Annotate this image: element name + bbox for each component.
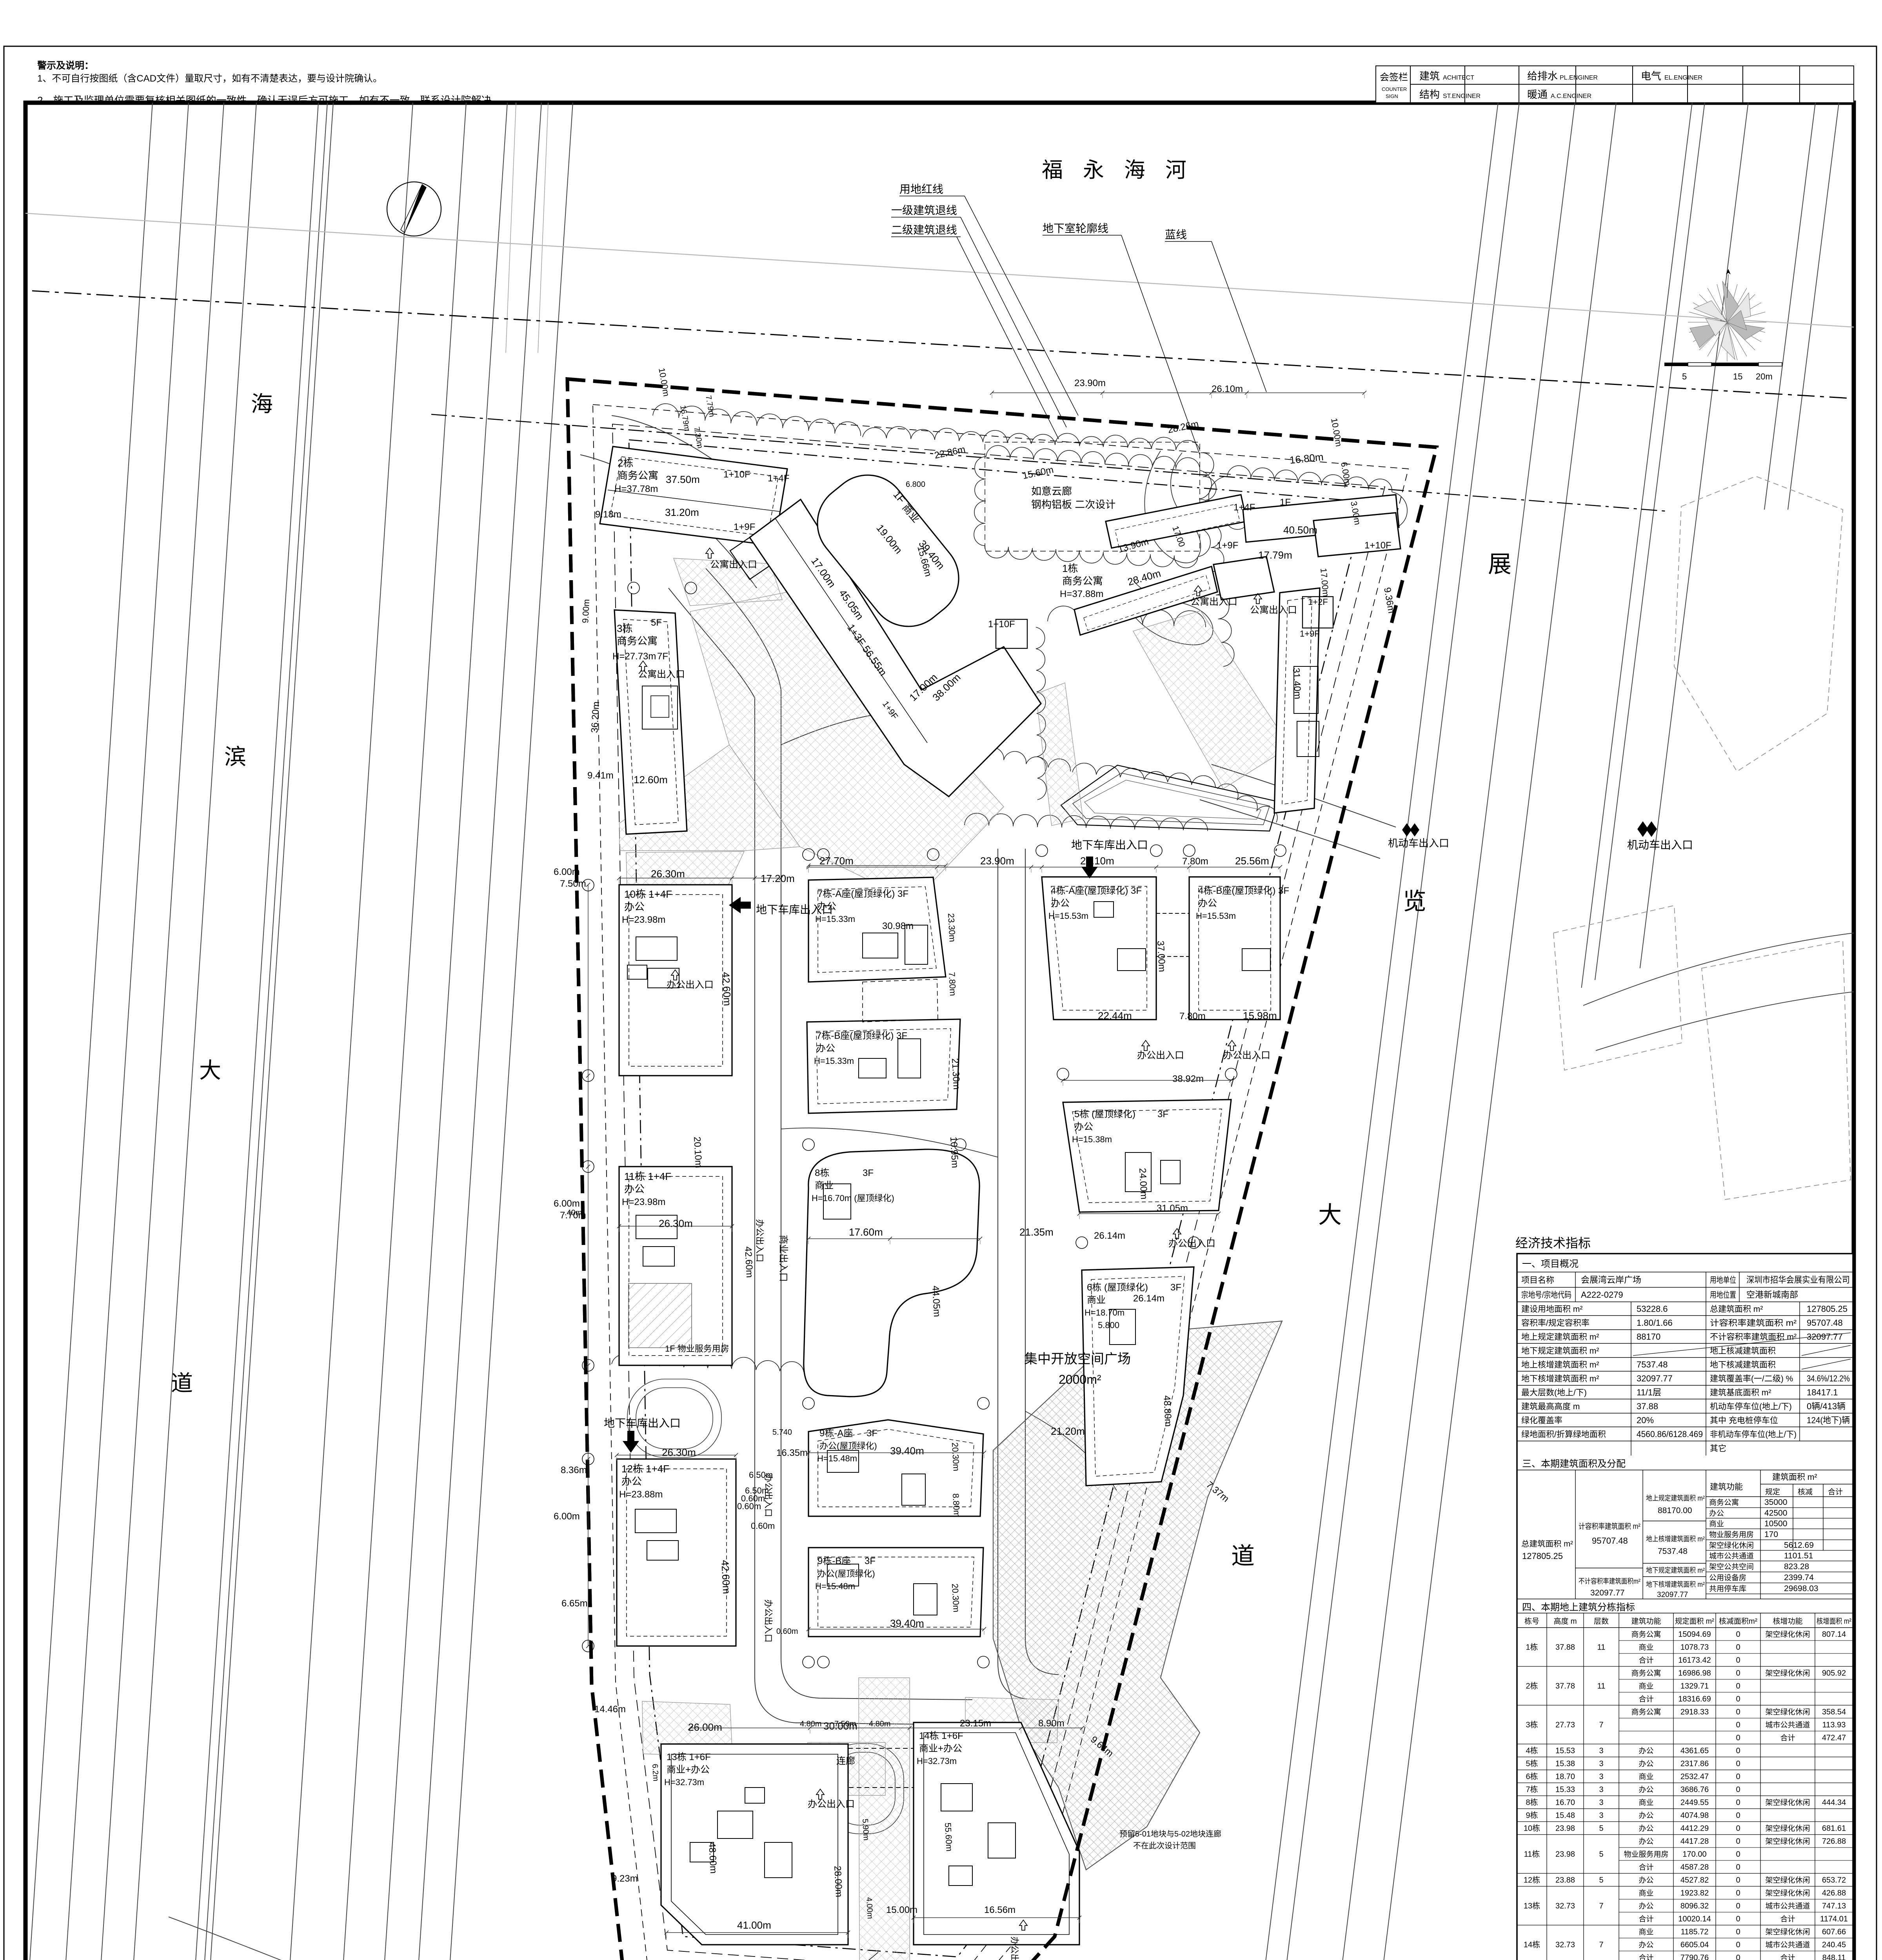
svg-text:17.79m: 17.79m [1258, 549, 1292, 561]
svg-text:SIGN: SIGN [1386, 93, 1398, 99]
svg-text:7.80m: 7.80m [1182, 856, 1208, 867]
svg-text:9.00m: 9.00m [580, 599, 591, 623]
svg-text:不在此次设计范围: 不在此次设计范围 [1133, 1841, 1196, 1850]
svg-text:地上核减建筑面积: 地上核减建筑面积 [1710, 1347, 1776, 1356]
svg-text:公寓出入口: 公寓出入口 [638, 669, 685, 680]
svg-text:0: 0 [1736, 1630, 1740, 1639]
svg-text:4560.86/6128.469: 4560.86/6128.469 [1637, 1429, 1703, 1439]
svg-text:23.98: 23.98 [1555, 1824, 1575, 1833]
svg-text:15.00m: 15.00m [886, 1905, 917, 1915]
svg-text:6.00m: 6.00m [554, 1511, 580, 1522]
svg-text:3: 3 [1599, 1811, 1603, 1820]
svg-text:道: 道 [1231, 1543, 1255, 1569]
svg-text:20.30m: 20.30m [950, 1442, 961, 1472]
svg-text:公寓出入口: 公寓出入口 [1190, 597, 1237, 607]
svg-text:2532.47: 2532.47 [1680, 1773, 1709, 1781]
svg-text:H=37.88m: H=37.88m [1060, 589, 1103, 599]
svg-text:0: 0 [1736, 1721, 1740, 1730]
svg-text:9.23m: 9.23m [612, 1873, 638, 1884]
svg-text:4栋-B座(屋顶绿化) 3F: 4栋-B座(屋顶绿化) 3F [1198, 886, 1289, 896]
svg-text:地下车库出入口: 地下车库出入口 [1071, 839, 1148, 851]
svg-text:8.80m: 8.80m [951, 1493, 962, 1517]
svg-text:20.30m: 20.30m [950, 1583, 961, 1613]
svg-text:地下核增建筑面积 m²: 地下核增建筑面积 m² [1521, 1374, 1599, 1383]
svg-text:9.41m: 9.41m [587, 770, 614, 781]
svg-text:用地红线: 用地红线 [899, 183, 943, 195]
svg-text:124(地下)辆: 124(地下)辆 [1807, 1416, 1850, 1425]
svg-text:0: 0 [1736, 1656, 1740, 1665]
svg-text:地下规定建筑面积 m²: 地下规定建筑面积 m² [1521, 1347, 1599, 1356]
svg-text:6.50m: 6.50m [749, 1470, 773, 1480]
svg-text:用地单位: 用地单位 [1710, 1276, 1736, 1285]
svg-text:结构: 结构 [1419, 89, 1440, 100]
svg-text:10栋: 10栋 [1524, 1824, 1540, 1833]
svg-text:H=15.38m: H=15.38m [1072, 1134, 1112, 1144]
svg-text:A222-0279: A222-0279 [1581, 1290, 1623, 1300]
svg-text:商业: 商业 [1639, 1889, 1653, 1898]
svg-text:7: 7 [1599, 1941, 1603, 1949]
svg-text:0: 0 [1736, 1786, 1740, 1794]
svg-text:9栋: 9栋 [1526, 1811, 1538, 1820]
svg-text:10栋 1+4F: 10栋 1+4F [624, 888, 672, 900]
svg-text:架空绿化休闲: 架空绿化休闲 [1765, 1928, 1810, 1936]
svg-text:6栋: 6栋 [1526, 1772, 1538, 1781]
svg-text:15094.69: 15094.69 [1678, 1630, 1711, 1639]
svg-text:3F: 3F [863, 1168, 874, 1178]
svg-text:472.47: 472.47 [1822, 1734, 1846, 1742]
svg-text:项目名称: 项目名称 [1521, 1276, 1554, 1285]
svg-text:0.60m: 0.60m [751, 1521, 775, 1531]
svg-text:空港新城南部: 空港新城南部 [1746, 1290, 1798, 1300]
svg-text:1栋: 1栋 [1062, 563, 1078, 574]
svg-text:607.66: 607.66 [1822, 1928, 1846, 1936]
svg-text:1101.51: 1101.51 [1784, 1552, 1813, 1561]
svg-text:暖通: 暖通 [1527, 89, 1548, 100]
svg-text:12栋 1+4F: 12栋 1+4F [621, 1463, 669, 1475]
svg-text:机动车出入口: 机动车出入口 [1627, 839, 1693, 851]
svg-text:公寓出入口: 公寓出入口 [710, 559, 757, 570]
svg-text:16.56m: 16.56m [984, 1905, 1015, 1915]
svg-text:地上核增建筑面积 m²: 地上核增建筑面积 m² [1646, 1535, 1705, 1543]
svg-text:绿地面积/折算绿地面积: 绿地面积/折算绿地面积 [1521, 1430, 1606, 1439]
svg-text:商务公寓: 商务公寓 [1631, 1630, 1661, 1639]
svg-text:1174.01: 1174.01 [1820, 1915, 1848, 1924]
svg-text:大: 大 [1318, 1202, 1342, 1228]
svg-text:架空绿化休闲: 架空绿化休闲 [1765, 1837, 1810, 1846]
svg-text:39.40m: 39.40m [890, 1445, 924, 1457]
svg-text:共用停车库: 共用停车库 [1709, 1584, 1746, 1593]
svg-text:0: 0 [1736, 1889, 1740, 1898]
svg-text:建筑覆盖率(一/二级) %: 建筑覆盖率(一/二级) % [1710, 1374, 1793, 1383]
svg-text:15.33: 15.33 [1555, 1786, 1575, 1794]
svg-text:4.00m: 4.00m [865, 1897, 874, 1919]
svg-text:444.34: 444.34 [1822, 1798, 1846, 1807]
svg-text:三、本期建筑面积及分配: 三、本期建筑面积及分配 [1522, 1459, 1626, 1469]
svg-text:9栋-A座: 9栋-A座 [819, 1428, 853, 1439]
svg-text:15.98m: 15.98m [1243, 1010, 1277, 1022]
svg-text:8.36m: 8.36m [561, 1465, 587, 1475]
svg-text:2栋: 2栋 [618, 457, 633, 469]
svg-text:H=15.53m: H=15.53m [1048, 911, 1088, 921]
svg-text:31.05m: 31.05m [1157, 1203, 1188, 1214]
svg-text:29698.03: 29698.03 [1784, 1584, 1818, 1593]
svg-text:0: 0 [1736, 1708, 1740, 1717]
svg-text:681.61: 681.61 [1822, 1824, 1846, 1833]
svg-text:高度 m: 高度 m [1553, 1617, 1577, 1626]
svg-text:27.73: 27.73 [1555, 1721, 1575, 1730]
svg-text:1、不可自行按图纸（含CAD文件）量取尺寸，如有不清楚表达，: 1、不可自行按图纸（含CAD文件）量取尺寸，如有不清楚表达，要与设计院确认。 [37, 73, 382, 84]
svg-text:H=23.98m: H=23.98m [622, 1197, 665, 1207]
svg-text:1栋: 1栋 [1526, 1643, 1538, 1652]
svg-text:办公: 办公 [1709, 1509, 1724, 1518]
svg-text:架空绿化休闲: 架空绿化休闲 [1765, 1876, 1810, 1885]
svg-text:0: 0 [1736, 1941, 1740, 1949]
svg-text:.40m: .40m [565, 1209, 582, 1217]
svg-text:架空绿化休闲: 架空绿化休闲 [1765, 1669, 1810, 1678]
svg-text:0: 0 [1736, 1928, 1740, 1936]
svg-text:807.14: 807.14 [1822, 1630, 1846, 1639]
svg-text:726.88: 726.88 [1822, 1837, 1846, 1846]
svg-text:21.20m: 21.20m [1051, 1425, 1085, 1437]
svg-text:合计: 合计 [1780, 1915, 1795, 1924]
svg-text:37.88: 37.88 [1555, 1643, 1575, 1652]
svg-text:商业: 商业 [1087, 1295, 1106, 1305]
svg-text:会展湾云岸广场: 会展湾云岸广场 [1581, 1275, 1641, 1285]
svg-text:建设用地面积 m²: 建设用地面积 m² [1521, 1305, 1582, 1314]
svg-text:会签栏: 会签栏 [1380, 72, 1408, 83]
svg-text:4412.29: 4412.29 [1680, 1824, 1709, 1833]
svg-text:地下车库出入口: 地下车库出入口 [604, 1417, 681, 1429]
svg-text:办公: 办公 [1051, 898, 1070, 909]
svg-text:地下规定建筑面积 m²: 地下规定建筑面积 m² [1646, 1566, 1705, 1574]
svg-text:建筑最高高度 m: 建筑最高高度 m [1521, 1402, 1580, 1411]
svg-text:总建筑面积 m²: 总建筑面积 m² [1710, 1305, 1763, 1314]
svg-text:H=27.73m: H=27.73m [612, 651, 656, 662]
svg-text:一、项目概况: 一、项目概况 [1522, 1259, 1579, 1269]
svg-text:16986.98: 16986.98 [1678, 1669, 1711, 1678]
svg-text:H=16.70m (屋顶绿化): H=16.70m (屋顶绿化) [812, 1193, 894, 1203]
svg-text:办公: 办公 [1639, 1837, 1653, 1846]
svg-text:3栋: 3栋 [617, 622, 632, 634]
svg-text:0: 0 [1736, 1643, 1740, 1652]
svg-text:1+9F: 1+9F [1300, 629, 1320, 639]
svg-text:建筑面积 m²: 建筑面积 m² [1772, 1473, 1817, 1482]
svg-text:福: 福 [1042, 158, 1063, 182]
svg-text:8栋: 8栋 [815, 1168, 829, 1178]
svg-text:办公(屋顶绿化): 办公(屋顶绿化) [817, 1569, 875, 1579]
svg-text:18316.69: 18316.69 [1678, 1695, 1711, 1704]
svg-text:商业: 商业 [1639, 1773, 1653, 1781]
svg-text:商业出入口: 商业出入口 [778, 1235, 788, 1282]
svg-text:合计: 合计 [1639, 1695, 1653, 1704]
svg-text:5612.69: 5612.69 [1784, 1541, 1814, 1550]
svg-text:7790.76: 7790.76 [1680, 1954, 1709, 1960]
svg-text:95707.48: 95707.48 [1807, 1318, 1843, 1328]
svg-text:11: 11 [1597, 1643, 1606, 1652]
svg-text:34.6%/12.2%: 34.6%/12.2% [1807, 1374, 1850, 1383]
svg-text:3: 3 [1599, 1773, 1603, 1781]
svg-text:0: 0 [1736, 1876, 1740, 1885]
svg-text:13栋 1+6F: 13栋 1+6F [667, 1752, 711, 1762]
svg-text:深圳市招华会展实业有限公司: 深圳市招华会展实业有限公司 [1746, 1275, 1850, 1285]
svg-text:商业: 商业 [1639, 1682, 1653, 1691]
svg-text:39.40m: 39.40m [890, 1617, 924, 1629]
svg-text:2、施工及监理单位需要复核相关图纸的一致性，确认无误后方可施: 2、施工及监理单位需要复核相关图纸的一致性，确认无误后方可施工，如有不一致，联系… [37, 94, 501, 106]
svg-text:42.60m: 42.60m [743, 1246, 755, 1278]
svg-text:5: 5 [1682, 372, 1687, 381]
svg-text:层数: 层数 [1594, 1617, 1609, 1626]
svg-text:海: 海 [251, 392, 273, 416]
svg-text:905.92: 905.92 [1822, 1669, 1846, 1678]
svg-text:23.30m: 23.30m [946, 913, 957, 942]
svg-text:823.28: 823.28 [1784, 1562, 1809, 1571]
svg-text:3686.76: 3686.76 [1680, 1786, 1709, 1794]
svg-text:商业: 商业 [1639, 1928, 1653, 1936]
svg-text:42.60m: 42.60m [720, 972, 733, 1006]
svg-text:23.90m: 23.90m [980, 855, 1014, 867]
svg-text:11/1层: 11/1层 [1637, 1388, 1661, 1397]
svg-text:H=37.78m: H=37.78m [614, 484, 658, 494]
svg-text:55.60m: 55.60m [943, 1822, 954, 1852]
svg-text:地下核减建筑面积: 地下核减建筑面积 [1710, 1361, 1776, 1370]
svg-text:办公: 办公 [1198, 898, 1217, 909]
svg-text:240.45: 240.45 [1822, 1941, 1846, 1949]
svg-text:7.80m: 7.80m [947, 972, 958, 996]
svg-text:物业服务用房: 物业服务用房 [1624, 1850, 1668, 1859]
svg-text:14栋 1+6F: 14栋 1+6F [919, 1731, 963, 1741]
svg-text:35000: 35000 [1764, 1498, 1787, 1507]
svg-text:0: 0 [1736, 1682, 1740, 1691]
svg-text:7栋-B座(屋顶绿化) 3F: 7栋-B座(屋顶绿化) 3F [816, 1031, 907, 1041]
svg-text:44.05m: 44.05m [930, 1285, 942, 1317]
svg-text:1+4F: 1+4F [1233, 502, 1255, 513]
svg-text:商务公寓: 商务公寓 [1062, 575, 1103, 587]
svg-text:合计: 合计 [1780, 1954, 1795, 1960]
svg-text:41.00m: 41.00m [737, 1919, 771, 1931]
svg-text:5: 5 [1599, 1850, 1603, 1859]
svg-text:20%: 20% [1637, 1416, 1654, 1425]
svg-text:览: 览 [1403, 888, 1426, 915]
svg-text:88170: 88170 [1637, 1332, 1660, 1342]
svg-text:32.73: 32.73 [1555, 1941, 1575, 1949]
svg-text:地上规定建筑面积 m²: 地上规定建筑面积 m² [1521, 1333, 1599, 1342]
svg-text:25.56m: 25.56m [1235, 855, 1269, 867]
svg-text:ST.ENGINER: ST.ENGINER [1443, 93, 1481, 100]
svg-text:办公出入口: 办公出入口 [763, 1599, 773, 1642]
svg-text:6605.04: 6605.04 [1680, 1941, 1709, 1949]
svg-text:商务公寓: 商务公寓 [618, 470, 658, 481]
svg-text:办公出入口: 办公出入口 [1137, 1050, 1184, 1061]
svg-text:848.11: 848.11 [1822, 1954, 1846, 1960]
svg-text:9栋-B座: 9栋-B座 [817, 1556, 851, 1566]
svg-text:426.88: 426.88 [1822, 1889, 1846, 1898]
svg-text:17.60m: 17.60m [849, 1226, 883, 1238]
svg-text:0: 0 [1736, 1824, 1740, 1833]
svg-text:12.60m: 12.60m [634, 774, 668, 786]
svg-text:5.740: 5.740 [772, 1428, 792, 1437]
svg-text:1185.72: 1185.72 [1681, 1928, 1709, 1936]
svg-text:4栋-A座(屋顶绿化) 3F: 4栋-A座(屋顶绿化) 3F [1051, 886, 1142, 896]
svg-text:26.14m: 26.14m [1094, 1230, 1125, 1241]
svg-text:16.70: 16.70 [1555, 1798, 1575, 1807]
svg-text:大: 大 [199, 1058, 221, 1083]
svg-text:1+10F: 1+10F [988, 619, 1015, 630]
svg-text:23.98: 23.98 [1555, 1850, 1575, 1859]
svg-text:合计: 合计 [1639, 1954, 1653, 1960]
svg-text:30.98m: 30.98m [882, 921, 914, 931]
svg-text:2449.55: 2449.55 [1680, 1798, 1709, 1807]
svg-text:4栋: 4栋 [1526, 1746, 1538, 1755]
svg-text:H=32.73m: H=32.73m [917, 1756, 957, 1766]
svg-text:0.60m: 0.60m [776, 1627, 798, 1636]
svg-text:海: 海 [1124, 158, 1145, 182]
svg-text:商务公寓: 商务公寓 [617, 635, 658, 647]
svg-text:商业: 商业 [1709, 1520, 1724, 1528]
svg-text:1+4F: 1+4F [768, 473, 789, 484]
svg-text:0: 0 [1736, 1902, 1740, 1911]
svg-text:113.93: 113.93 [1822, 1721, 1846, 1730]
svg-text:H=23.88m: H=23.88m [619, 1489, 663, 1500]
svg-text:653.72: 653.72 [1822, 1876, 1846, 1885]
svg-text:7537.48: 7537.48 [1658, 1547, 1688, 1556]
svg-text:架空绿化休闲: 架空绿化休闲 [1709, 1541, 1754, 1550]
svg-text:20m: 20m [1756, 372, 1773, 381]
svg-text:15.48: 15.48 [1555, 1811, 1575, 1820]
svg-text:36.20m: 36.20m [589, 701, 601, 733]
svg-text:商业+办公: 商业+办公 [667, 1764, 710, 1775]
svg-text:5: 5 [1599, 1876, 1603, 1885]
svg-text:H=32.73m: H=32.73m [664, 1777, 704, 1787]
svg-text:4587.28: 4587.28 [1680, 1863, 1709, 1872]
svg-text:31.20m: 31.20m [665, 506, 699, 518]
svg-text:1923.82: 1923.82 [1680, 1889, 1709, 1898]
svg-text:4417.28: 4417.28 [1680, 1837, 1709, 1846]
svg-text:7537.48: 7537.48 [1637, 1360, 1668, 1370]
svg-text:地上规定建筑面积 m²: 地上规定建筑面积 m² [1646, 1494, 1705, 1502]
svg-text:5: 5 [1599, 1824, 1603, 1833]
svg-text:核增功能: 核增功能 [1773, 1617, 1802, 1626]
svg-text:22.44m: 22.44m [1098, 1010, 1132, 1022]
svg-text:48.60m: 48.60m [707, 1842, 719, 1874]
svg-text:2317.86: 2317.86 [1680, 1760, 1709, 1768]
svg-text:城市公共通道: 城市公共通道 [1709, 1552, 1754, 1561]
svg-text:二级建筑退线: 二级建筑退线 [891, 224, 957, 236]
svg-text:26.30m: 26.30m [659, 1218, 693, 1229]
svg-text:0: 0 [1736, 1811, 1740, 1820]
svg-text:127805.25: 127805.25 [1807, 1304, 1847, 1314]
svg-text:城市公共通道: 城市公共通道 [1765, 1941, 1810, 1949]
svg-text:1F 物业服务用房: 1F 物业服务用房 [665, 1344, 729, 1354]
svg-text:11栋 1+4F: 11栋 1+4F [624, 1171, 671, 1182]
svg-text:规定面积 m²: 规定面积 m² [1675, 1617, 1714, 1626]
svg-text:3: 3 [1599, 1786, 1603, 1794]
svg-text:1+9F: 1+9F [734, 522, 755, 532]
svg-text:道: 道 [171, 1371, 193, 1396]
svg-text:95707.48: 95707.48 [1592, 1536, 1628, 1546]
svg-text:7: 7 [1599, 1721, 1603, 1730]
svg-text:6栋 (屋顶绿化): 6栋 (屋顶绿化) [1087, 1282, 1148, 1293]
svg-text:0.60m: 0.60m [741, 1494, 765, 1503]
svg-text:0: 0 [1736, 1863, 1740, 1872]
svg-text:永: 永 [1083, 158, 1104, 182]
svg-text:预留5-01地块与5-02地块连廊: 预留5-01地块与5-02地块连廊 [1119, 1829, 1221, 1838]
svg-text:747.13: 747.13 [1822, 1902, 1846, 1911]
svg-text:H=15.53m: H=15.53m [1196, 911, 1236, 921]
svg-text:7栋: 7栋 [1526, 1785, 1538, 1794]
svg-text:滨: 滨 [224, 744, 246, 769]
svg-text:37.78: 37.78 [1555, 1682, 1575, 1691]
svg-text:0: 0 [1736, 1915, 1740, 1924]
svg-text:0: 0 [1736, 1954, 1740, 1960]
svg-text:88170.00: 88170.00 [1658, 1506, 1692, 1515]
svg-text:宗地号/宗地代码: 宗地号/宗地代码 [1521, 1291, 1571, 1300]
svg-text:32.73: 32.73 [1555, 1902, 1575, 1911]
svg-text:办公出入口: 办公出入口 [808, 1799, 855, 1809]
svg-text:7.80m: 7.80m [1179, 1011, 1206, 1022]
svg-text:四、本期地上建筑分栋指标: 四、本期地上建筑分栋指标 [1522, 1602, 1635, 1613]
svg-text:8096.32: 8096.32 [1680, 1902, 1709, 1911]
svg-text:城市公共通道: 城市公共通道 [1765, 1902, 1810, 1911]
svg-text:总建筑面积 m²: 总建筑面积 m² [1521, 1539, 1573, 1548]
svg-text:1+2F: 1+2F [1308, 597, 1328, 607]
svg-text:3F: 3F [865, 1556, 876, 1566]
svg-text:商务公寓: 商务公寓 [1631, 1669, 1661, 1678]
svg-text:3: 3 [1599, 1760, 1603, 1768]
svg-text:办公: 办公 [624, 1183, 645, 1195]
svg-text:合计: 合计 [1639, 1863, 1653, 1872]
svg-text:绿化覆盖率: 绿化覆盖率 [1521, 1416, 1562, 1425]
svg-text:0: 0 [1736, 1850, 1740, 1859]
svg-text:38.92m: 38.92m [1172, 1074, 1204, 1084]
svg-text:H=18.70m: H=18.70m [1085, 1308, 1124, 1318]
svg-text:5栋 (屋顶绿化): 5栋 (屋顶绿化) [1074, 1109, 1135, 1120]
svg-text:10.95m: 10.95m [948, 1136, 960, 1168]
svg-text:32097.77: 32097.77 [1657, 1591, 1688, 1599]
svg-text:1+10F: 1+10F [723, 469, 750, 480]
svg-text:公寓出入口: 公寓出入口 [1250, 605, 1297, 615]
svg-text:3: 3 [1599, 1798, 1603, 1807]
svg-text:办公: 办公 [1639, 1760, 1653, 1768]
svg-text:18417.1: 18417.1 [1807, 1388, 1838, 1397]
svg-text:办公出入口: 办公出入口 [1010, 1936, 1019, 1960]
svg-text:架空绿化休闲: 架空绿化休闲 [1765, 1708, 1810, 1717]
svg-text:经济技术指标: 经济技术指标 [1515, 1236, 1591, 1250]
svg-text:8.90m: 8.90m [1038, 1718, 1065, 1729]
svg-text:架空绿化休闲: 架空绿化休闲 [1765, 1798, 1810, 1807]
svg-text:17.20m: 17.20m [761, 873, 795, 884]
svg-text:37.50m: 37.50m [666, 474, 700, 485]
svg-text:容积率/规定容积率: 容积率/规定容积率 [1521, 1319, 1590, 1328]
svg-text:规定: 规定 [1765, 1488, 1780, 1496]
svg-text:14.46m: 14.46m [594, 1704, 626, 1715]
svg-text:0: 0 [1736, 1837, 1740, 1846]
svg-text:32097.77: 32097.77 [1637, 1374, 1673, 1383]
svg-text:0: 0 [1736, 1773, 1740, 1781]
svg-text:53228.6: 53228.6 [1637, 1304, 1668, 1314]
svg-text:物业服务用房: 物业服务用房 [1709, 1530, 1754, 1539]
svg-text:7.50m: 7.50m [834, 1720, 856, 1728]
svg-text:28.00m: 28.00m [832, 1866, 844, 1897]
svg-text:23.88: 23.88 [1555, 1876, 1575, 1885]
svg-text:0: 0 [1736, 1747, 1740, 1755]
svg-text:3栋: 3栋 [1526, 1720, 1538, 1730]
svg-text:H=15.33m: H=15.33m [814, 1056, 854, 1066]
svg-text:合计: 合计 [1828, 1488, 1843, 1496]
svg-text:用地位置: 用地位置 [1710, 1291, 1736, 1300]
svg-text:9.18m: 9.18m [595, 509, 621, 520]
svg-text:16173.42: 16173.42 [1678, 1656, 1711, 1665]
svg-text:6.800: 6.800 [906, 480, 925, 489]
